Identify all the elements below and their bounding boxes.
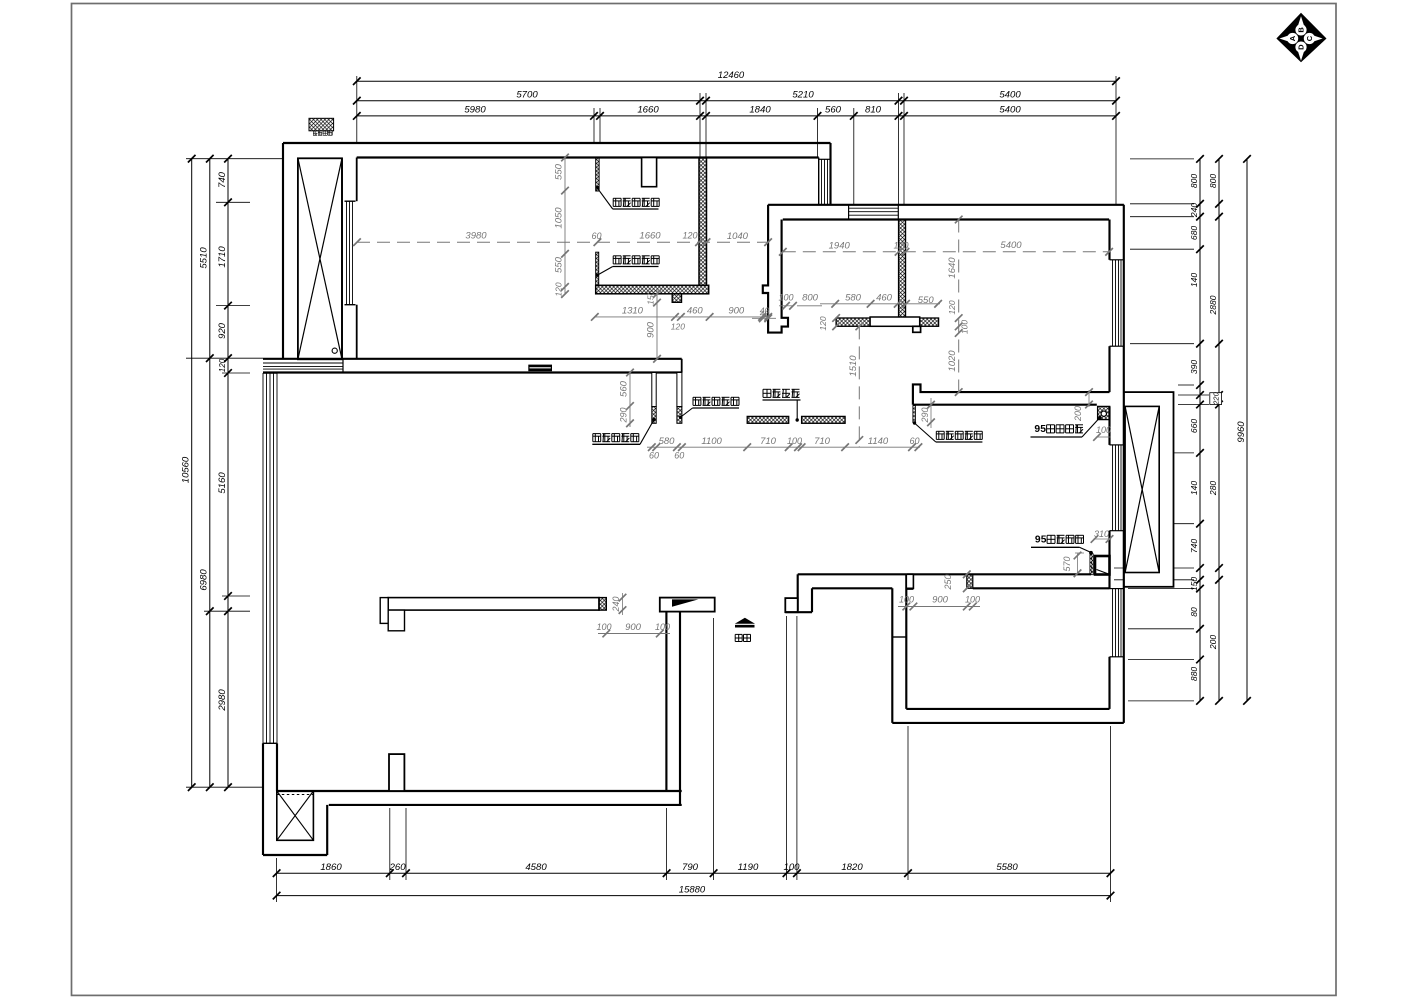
svg-text:1050: 1050 (554, 207, 565, 229)
svg-text:280: 280 (1208, 481, 1218, 496)
svg-text:100: 100 (960, 320, 970, 334)
svg-text:5: 5 (1040, 424, 1046, 435)
svg-text:880: 880 (1189, 667, 1199, 681)
svg-text:710: 710 (760, 436, 777, 447)
svg-text:1940: 1940 (829, 240, 851, 251)
svg-text:9960: 9960 (1236, 421, 1247, 443)
svg-text:240: 240 (611, 596, 621, 612)
svg-text:900: 900 (625, 622, 642, 633)
svg-text:1020: 1020 (947, 350, 958, 372)
svg-text:570: 570 (1062, 556, 1072, 571)
svg-text:390: 390 (1189, 360, 1199, 374)
svg-text:100: 100 (787, 436, 802, 446)
svg-text:200: 200 (1073, 406, 1083, 422)
svg-text:140: 140 (1189, 273, 1199, 287)
svg-text:790: 790 (682, 862, 699, 873)
svg-text:260: 260 (389, 862, 407, 873)
svg-text:5700: 5700 (516, 89, 538, 100)
svg-text:460: 460 (687, 306, 704, 317)
svg-text:5210: 5210 (792, 89, 814, 100)
svg-text:1140: 1140 (868, 436, 889, 447)
svg-text:580: 580 (845, 293, 862, 304)
svg-text:120: 120 (893, 240, 908, 250)
svg-text:290: 290 (619, 407, 629, 423)
svg-text:5160: 5160 (217, 472, 228, 494)
svg-text:80: 80 (1189, 607, 1199, 617)
svg-text:560: 560 (619, 380, 630, 397)
svg-text:120: 120 (671, 322, 685, 332)
svg-text:100: 100 (778, 292, 793, 302)
svg-text:1190: 1190 (738, 862, 759, 873)
svg-text:60: 60 (649, 451, 659, 461)
svg-text:900: 900 (932, 595, 949, 606)
svg-text:1310: 1310 (622, 306, 644, 317)
svg-text:550: 550 (554, 163, 565, 180)
svg-text:740: 740 (1189, 539, 1199, 553)
svg-text:12460: 12460 (718, 70, 745, 81)
svg-text:1040: 1040 (727, 231, 749, 242)
svg-text:100: 100 (596, 622, 611, 632)
svg-text:200: 200 (1208, 635, 1218, 650)
svg-text:1860: 1860 (320, 862, 342, 873)
svg-text:10560: 10560 (181, 456, 192, 483)
svg-text:1660: 1660 (637, 105, 659, 116)
svg-text:1660: 1660 (639, 231, 661, 242)
svg-text:680: 680 (1189, 226, 1199, 240)
svg-text:560: 560 (825, 105, 842, 116)
svg-text:D: D (1297, 44, 1306, 50)
svg-text:250: 250 (943, 574, 953, 590)
svg-text:60: 60 (909, 436, 919, 446)
svg-text:1820: 1820 (841, 862, 863, 873)
svg-text:60: 60 (591, 231, 601, 241)
svg-text:220: 220 (1211, 391, 1220, 405)
svg-text:3980: 3980 (465, 231, 487, 242)
svg-text:120: 120 (818, 316, 828, 330)
svg-text:4580: 4580 (525, 862, 547, 873)
svg-text:1510: 1510 (848, 355, 859, 377)
svg-text:5510: 5510 (199, 247, 210, 269)
svg-text:900: 900 (646, 321, 657, 338)
svg-text:5: 5 (1041, 535, 1047, 546)
svg-text:920: 920 (217, 322, 228, 339)
svg-text:800: 800 (1208, 174, 1218, 188)
svg-text:60: 60 (674, 451, 684, 461)
svg-text:800: 800 (802, 292, 819, 303)
svg-text:580: 580 (659, 436, 676, 447)
svg-text:710: 710 (814, 436, 831, 447)
svg-text:800: 800 (1189, 174, 1199, 188)
svg-text:900: 900 (728, 306, 745, 317)
svg-text:1710: 1710 (217, 246, 228, 268)
svg-text:5400: 5400 (1000, 240, 1022, 251)
svg-text:140: 140 (1189, 481, 1199, 495)
svg-text:290: 290 (920, 407, 930, 423)
svg-text:740: 740 (217, 171, 228, 188)
svg-text:100: 100 (655, 622, 670, 632)
svg-text:5400: 5400 (999, 105, 1021, 116)
svg-text:550: 550 (918, 295, 935, 306)
svg-text:120: 120 (554, 282, 564, 296)
svg-text:5580: 5580 (996, 862, 1018, 873)
svg-text:460: 460 (876, 293, 893, 304)
svg-text:150: 150 (646, 290, 656, 304)
svg-text:2980: 2980 (217, 689, 228, 712)
svg-text:2880: 2880 (1208, 295, 1218, 315)
svg-text:810: 810 (865, 105, 882, 116)
svg-text:240: 240 (1189, 203, 1199, 218)
svg-text:100: 100 (899, 595, 914, 605)
svg-text:5400: 5400 (999, 89, 1021, 100)
svg-text:6980: 6980 (199, 569, 210, 591)
svg-text:1640: 1640 (947, 257, 958, 279)
svg-text:C: C (1305, 35, 1314, 41)
svg-text:120: 120 (218, 358, 227, 372)
svg-text:15880: 15880 (679, 884, 706, 895)
svg-text:1840: 1840 (749, 105, 771, 116)
svg-text:120: 120 (682, 231, 697, 241)
svg-text:1100: 1100 (701, 436, 722, 447)
svg-text:5980: 5980 (464, 105, 486, 116)
svg-text:550: 550 (554, 256, 565, 273)
svg-text:120: 120 (947, 300, 957, 314)
svg-text:660: 660 (1189, 419, 1199, 433)
svg-text:100: 100 (783, 862, 800, 873)
svg-text:B: B (1297, 27, 1306, 33)
svg-text:A: A (1288, 35, 1297, 41)
svg-text:100: 100 (1096, 425, 1111, 435)
svg-text:100: 100 (965, 595, 980, 605)
